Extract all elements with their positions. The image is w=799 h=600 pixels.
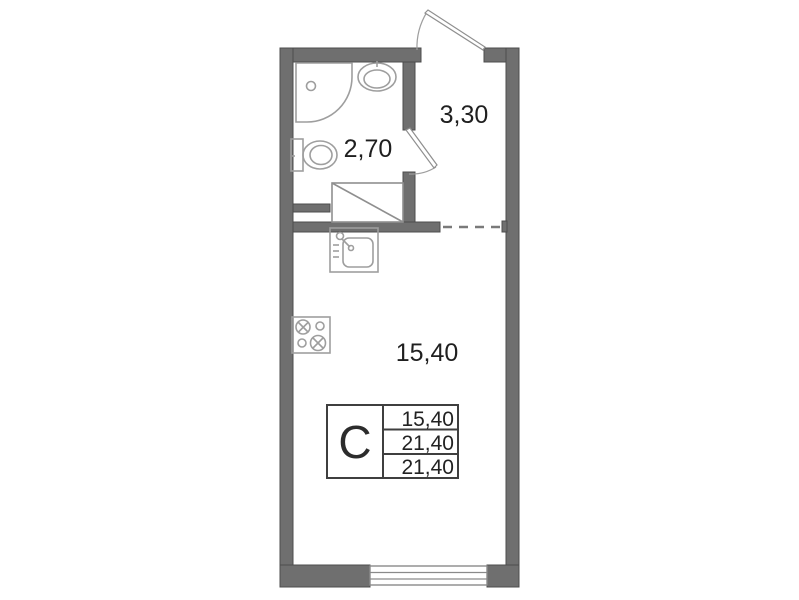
floor-plan: 2,70 3,30 15,40 С 15,40 21,40 21,40 [0,0,799,600]
wall-kitchen [293,222,440,232]
bathroom-door-leaf [406,128,437,168]
wall-bottom-right [487,565,519,587]
shower-icon [296,63,352,122]
kitchen-sink-icon [330,228,378,272]
window [370,566,487,585]
entrance-door-arc [417,12,427,50]
entrance-door-leaf [425,10,485,50]
stove-icon [292,317,330,353]
wall-bathroom-stub [293,204,330,212]
wall-bottom-left [280,565,370,587]
entrance-door [417,10,485,50]
table-living-area: 15,40 [401,408,454,431]
info-table: С 15,40 21,40 21,40 [327,405,458,479]
washbasin-icon [358,61,396,91]
bathroom-area-label: 2,70 [344,135,393,163]
apartment-type-letter: С [338,416,371,468]
living-room-area-label: 15,40 [396,339,459,367]
bathroom-door [406,128,437,174]
table-total-area: 21,40 [401,432,454,455]
table-full-area: 21,40 [401,456,454,479]
wall-dash-nub [502,221,507,232]
vent-shaft [332,183,403,222]
wall-right [506,48,519,587]
hallway-area-label: 3,30 [440,101,489,129]
toilet-icon [291,139,337,171]
wall-left [280,48,293,587]
floor-plan-canvas: 2,70 3,30 15,40 С 15,40 21,40 21,40 [0,0,799,600]
wall-top-left [280,48,421,62]
wall-bathroom-upper [403,62,415,130]
